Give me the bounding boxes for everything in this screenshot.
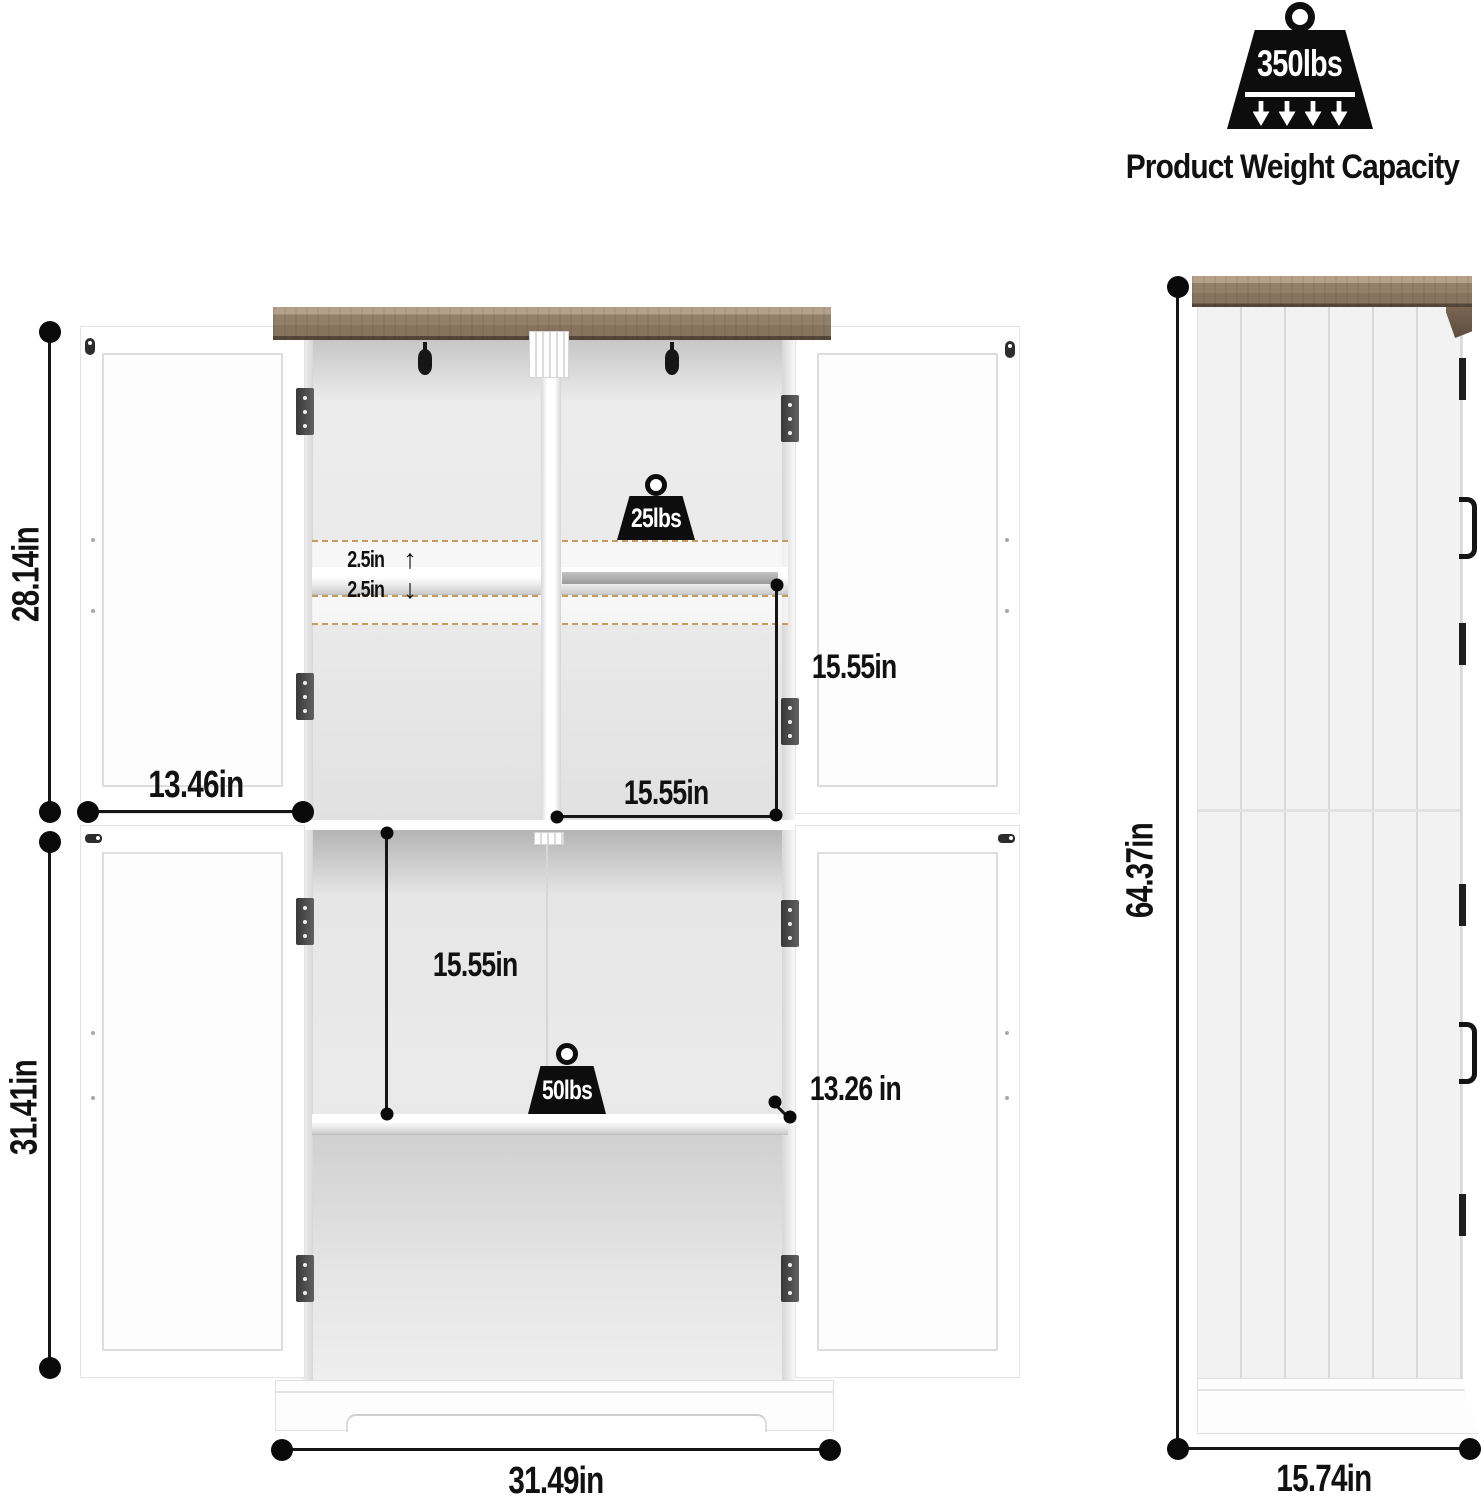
side-base <box>1197 1378 1478 1434</box>
door-catch-hook-icon <box>665 349 679 375</box>
dim-label-shelf-adjust-down: 2.5in ↓ <box>342 574 417 605</box>
door-panel <box>817 353 998 787</box>
dim-dot <box>271 1439 293 1461</box>
weight-capacity-caption: Product Weight Capacity <box>1100 148 1484 187</box>
dim-dot <box>381 1108 394 1121</box>
weight-icon-25lbs-ring <box>645 474 667 496</box>
dim-line-upper-comp-height <box>775 585 778 815</box>
dim-line-door-width <box>88 810 303 813</box>
dim-dot <box>1459 1438 1481 1460</box>
shelf-pin-hole <box>1005 1031 1009 1035</box>
door-catch <box>85 338 95 355</box>
dim-label-shelf-adjust-up: 2.5in ↑ <box>342 544 417 575</box>
hinge <box>781 1255 799 1302</box>
dim-dot <box>1167 1438 1189 1460</box>
shelf-pin-hole <box>1005 538 1009 542</box>
shelf-pin-hole <box>91 538 95 542</box>
dim-label-upper-height: 28.14in <box>6 500 49 650</box>
dim-line-overall-height <box>1176 287 1179 1449</box>
side-seam <box>1198 809 1460 812</box>
product-dimension-diagram: 350lbs Product Weight Capacity 25lbs <box>0 0 1484 1500</box>
door-catch-hook-icon <box>418 349 432 375</box>
hinge <box>781 698 799 745</box>
front-base <box>275 1380 834 1431</box>
dim-dot <box>39 831 61 853</box>
below-shelf-shadow <box>312 1134 788 1380</box>
shelf-pin-hole <box>91 609 95 613</box>
door-handle-icon <box>1459 1022 1477 1084</box>
weight-icon-ring <box>1285 2 1315 32</box>
door-lower-left <box>80 825 305 1378</box>
dim-label-lower-height: 31.41in <box>4 1033 47 1183</box>
hinge <box>781 395 799 442</box>
hinge <box>296 673 314 720</box>
weight-icon-bar <box>1245 92 1355 97</box>
side-panel <box>1197 302 1463 1380</box>
door-catch <box>1005 341 1015 358</box>
dim-label-door-width: 13.46in <box>96 764 296 807</box>
dim-label-overall-width: 31.49in <box>456 1460 656 1500</box>
door-panel <box>102 852 283 1351</box>
weight-icon-350lbs: 350lbs <box>1227 30 1373 129</box>
shelf-pin-hole <box>91 1031 95 1035</box>
hinge <box>296 898 314 945</box>
dim-line-overall-depth <box>1178 1447 1470 1450</box>
dim-label-upper-comp-width: 15.55in <box>566 774 766 813</box>
dim-label-shelf-depth: 13.26 in <box>797 1070 914 1109</box>
door-catch <box>998 834 1015 843</box>
dim-dot <box>551 811 564 824</box>
dim-dot <box>770 809 783 822</box>
side-hinge-nub <box>1459 358 1466 400</box>
dim-label-lower-comp-height: 15.55in <box>421 946 529 985</box>
dim-label-upper-comp-height: 15.55in <box>800 648 908 687</box>
weight-icon-25lbs: 25lbs <box>617 496 695 540</box>
dim-line-overall-width <box>282 1448 830 1451</box>
side-hinge-nub <box>1459 1194 1466 1236</box>
arrow-up-icon: ↑ <box>403 544 417 575</box>
wood-top-side <box>1192 276 1472 307</box>
side-hinge-nub <box>1459 884 1466 926</box>
dim-label-overall-depth: 15.74in <box>1224 1458 1424 1500</box>
side-hinge-nub <box>1459 623 1466 665</box>
shelf-edge-rod <box>562 572 778 584</box>
dim-line-lower-comp-height <box>385 833 388 1114</box>
dim-dot <box>39 321 61 343</box>
dim-dot <box>39 1357 61 1379</box>
dim-dot <box>819 1439 841 1461</box>
upper-center-divider <box>541 340 561 820</box>
dim-line-lower-height <box>48 842 51 1368</box>
dim-label-overall-height: 64.37in <box>1120 796 1163 946</box>
door-catch <box>85 834 102 843</box>
weight-icon-50lbs: 50lbs <box>528 1066 606 1114</box>
center-latch <box>529 331 569 378</box>
shelf-pin-hole <box>91 1096 95 1100</box>
base-arch-cutout <box>346 1414 767 1432</box>
lower-latch <box>534 832 564 845</box>
weight-icon-50lbs-ring <box>556 1043 578 1065</box>
weight-capacity-badge: 350lbs Product Weight Capacity <box>1100 0 1484 200</box>
dim-dot <box>381 827 394 840</box>
hinge <box>781 900 799 947</box>
dim-dot <box>769 1096 782 1109</box>
shelf-pin-hole <box>1005 1096 1009 1100</box>
shelf-pin-hole <box>1005 609 1009 613</box>
door-upper-right <box>795 326 1020 814</box>
hinge <box>296 388 314 435</box>
dim-dot <box>771 579 784 592</box>
arrow-down-icon: ↓ <box>403 574 417 605</box>
door-upper-left <box>80 326 305 814</box>
dim-dot <box>1167 276 1189 298</box>
down-arrows-icon <box>1227 101 1373 126</box>
dim-dot <box>39 801 61 823</box>
door-handle-icon <box>1459 497 1477 559</box>
hinge <box>296 1255 314 1302</box>
weight-capacity-value: 350lbs <box>1227 43 1373 85</box>
dim-line-upper-comp-width <box>557 815 776 818</box>
door-panel <box>102 353 283 787</box>
dim-dot <box>784 1111 797 1124</box>
